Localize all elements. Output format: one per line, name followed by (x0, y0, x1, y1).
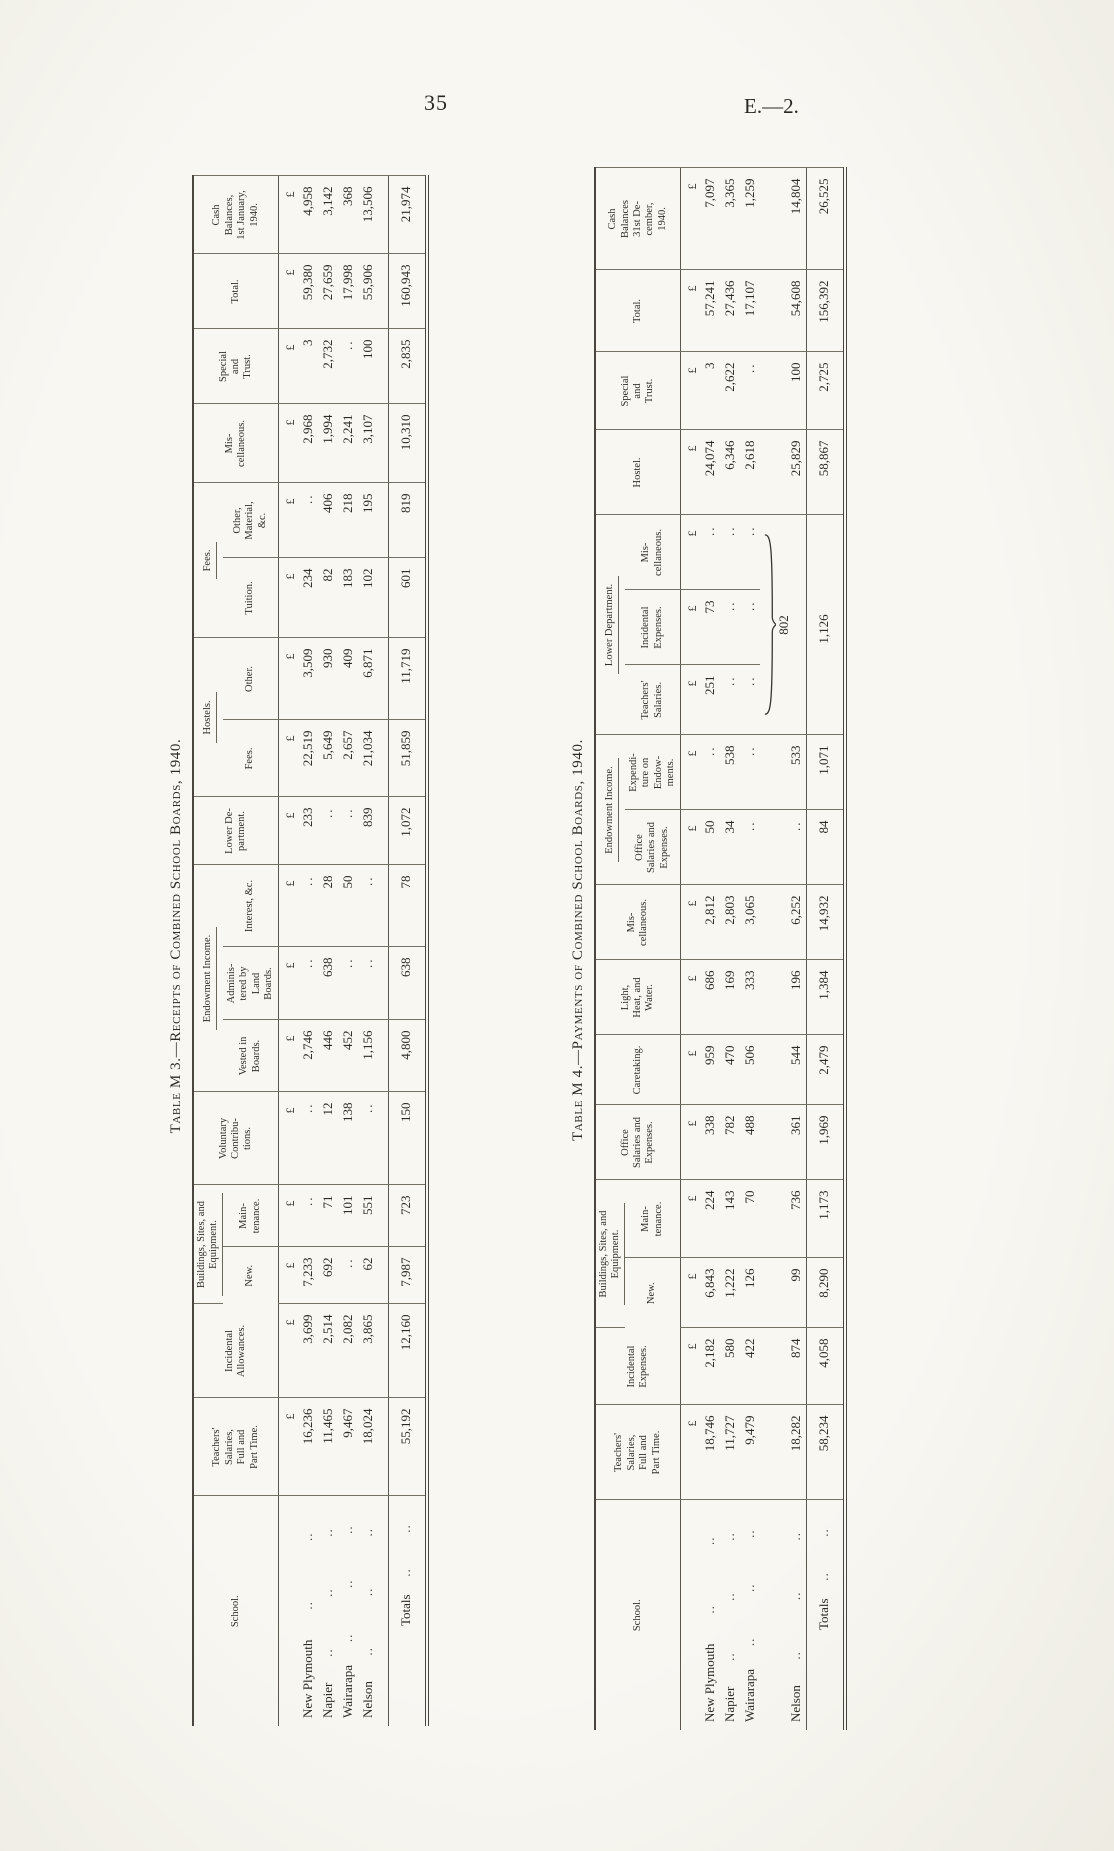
value-cell: 6,843 (700, 1258, 720, 1328)
value-cell: 100 (358, 329, 389, 404)
dot-leader: .. (300, 1601, 316, 1610)
m3-group-fees: Fees. (193, 483, 223, 638)
value-cell: 4,958 (298, 176, 318, 254)
currency-symbol: £ (681, 168, 701, 270)
value-cell: 156,392 (807, 270, 846, 352)
value-cell: .. (358, 865, 389, 947)
table-m3-body: £££££££££££££££££New Plymouth....16,2363… (279, 176, 428, 1726)
school-name-cell: Wairarapa...... (338, 1496, 358, 1726)
totals-label-cell: Totals.... (807, 1500, 846, 1730)
value-cell: 17,107 (740, 270, 760, 352)
value-cell: 101 (338, 1185, 358, 1247)
currency-symbol: £ (279, 1398, 299, 1496)
value-cell: .. (720, 665, 740, 735)
value-cell: 2,514 (318, 1304, 338, 1398)
table-row: Nelson......18,282874997363615441966,252… (760, 168, 807, 1730)
value-cell: .. (740, 590, 760, 665)
table-row: Wairarapa......9,479422126704885063333,0… (740, 168, 760, 1730)
value-cell: 601 (389, 558, 428, 638)
currency-symbol: £ (279, 404, 299, 483)
dot-leader: .. (742, 1583, 758, 1592)
currency-symbol: £ (279, 720, 299, 797)
table-row: Napier......11,7275801,2221437824701692,… (720, 168, 740, 1730)
value-cell: 406 (318, 483, 338, 558)
value-cell: 27,659 (318, 254, 338, 329)
school-name: Napier (722, 1687, 738, 1722)
currency-symbol: £ (279, 558, 299, 638)
value-cell: .. (298, 947, 318, 1020)
totals-row: Totals....58,2344,0588,2901,1731,9692,47… (807, 168, 846, 1730)
school-name-cell: Napier...... (318, 1496, 338, 1726)
value-cell: 18,024 (358, 1398, 389, 1496)
value-cell: 12,160 (389, 1304, 428, 1398)
value-cell: 361 (760, 1105, 807, 1180)
currency-symbol: £ (279, 638, 299, 720)
m3-group-buildings: Buildings, Sites, and Equipment. (193, 1185, 223, 1304)
value-cell: .. (338, 947, 358, 1020)
value-cell: 3 (700, 352, 720, 430)
value-cell: 183 (338, 558, 358, 638)
value-cell: 638 (389, 947, 428, 1020)
table-m4-rotated-container: Table M 4.—Payments of Combined School B… (570, 150, 847, 1730)
value-cell: .. (298, 1185, 318, 1247)
blank-cell (279, 1496, 299, 1726)
value-cell: 7,987 (389, 1247, 428, 1304)
value-cell: 11,719 (389, 638, 428, 720)
m4-group-buildings: Buildings, Sites, and Equipment. (595, 1180, 625, 1328)
m3-col-administered-by-land-boards: Adminis- tered by Land Boards. (223, 947, 279, 1020)
value-cell: 6,871 (358, 638, 389, 720)
value-cell: 11,727 (720, 1405, 740, 1500)
value-cell: 930 (318, 638, 338, 720)
value-cell: .. (358, 1092, 389, 1185)
value-cell: 233 (298, 797, 318, 865)
dot-leader: .. (816, 1572, 832, 1581)
school-name: Nelson (788, 1685, 804, 1722)
value-cell: 11,465 (318, 1398, 338, 1496)
m3-col-hostels-fees: Fees. (223, 720, 279, 797)
value-cell: 2,968 (298, 404, 318, 483)
dot-leader: .. (722, 1532, 738, 1541)
value-cell: 5,649 (318, 720, 338, 797)
currency-symbol: £ (279, 329, 299, 404)
value-cell: 59,380 (298, 254, 318, 329)
value-cell: 1,156 (358, 1020, 389, 1092)
value-cell: 6,346 (720, 430, 740, 515)
value-cell: 28 (318, 865, 338, 947)
value-cell: .. (358, 947, 389, 1020)
dot-leader: .. (788, 1651, 804, 1660)
m4-group-endowment-income: Endowment Income. (595, 735, 625, 885)
currency-symbol: £ (279, 1020, 299, 1092)
value-cell: 959 (700, 1035, 720, 1105)
value-cell: 1,969 (807, 1105, 846, 1180)
currency-symbol: £ (279, 176, 299, 254)
school-name: Napier (320, 1683, 336, 1718)
currency-symbol: £ (681, 1035, 701, 1105)
m3-col-lower-department: Lower De- partment. (193, 797, 279, 865)
value-cell: 34 (720, 810, 740, 885)
value-cell: .. (740, 735, 760, 810)
dot-leader: .. (816, 1528, 832, 1537)
dot-leader: .. (340, 1634, 356, 1643)
value-cell: 3,865 (358, 1304, 389, 1398)
m4-col-office-salaries: Office Salaries and Expenses. (595, 1105, 681, 1180)
value-cell: 9,479 (740, 1405, 760, 1500)
value-cell: 99 (760, 1258, 807, 1328)
value-cell: 8,290 (807, 1258, 846, 1328)
value-cell: 3,065 (740, 885, 760, 960)
document-reference: E.—2. (744, 94, 799, 119)
value-cell: 55,906 (358, 254, 389, 329)
m4-col-light-heat-water: Light, Heat, and Water. (595, 960, 681, 1035)
value-cell: 506 (740, 1035, 760, 1105)
value-cell: 22,519 (298, 720, 318, 797)
table-m3-header: School. Teachers' Salaries, Full and Par… (193, 176, 279, 1726)
totals-row: Totals....55,19212,1607,9877231504,80063… (389, 176, 428, 1726)
m3-group-endowment-income: Endowment Income. (193, 865, 223, 1092)
value-cell: 24,074 (700, 430, 720, 515)
value-cell: .. (298, 1092, 318, 1185)
value-cell: 2,182 (700, 1328, 720, 1405)
value-cell: 446 (318, 1020, 338, 1092)
value-cell: .. (720, 590, 740, 665)
table-m4-body: £££££££££££££££££New Plymouth....18,7462… (681, 168, 846, 1730)
school-name: New Plymouth (300, 1640, 316, 1718)
currency-symbol: £ (681, 735, 701, 810)
value-cell: 2,657 (338, 720, 358, 797)
currency-symbol: £ (681, 960, 701, 1035)
m4-col-caretaking: Caretaking. (595, 1035, 681, 1105)
value-cell: 27,436 (720, 270, 740, 352)
school-name-cell: Nelson...... (358, 1496, 389, 1726)
value-cell: 143 (720, 1180, 740, 1258)
m4-group-lower-department: Lower Department. (595, 515, 625, 735)
table-m3-rotated-container: Table M 3.—Receipts of Combined School B… (168, 146, 429, 1726)
m3-col-school: School. (193, 1496, 279, 1726)
value-cell: 3,509 (298, 638, 318, 720)
dot-leader: .. (398, 1568, 414, 1577)
value-cell: 544 (760, 1035, 807, 1105)
value-cell: 14,804 (760, 168, 807, 270)
m3-col-maintenance: Main- tenance. (223, 1185, 279, 1247)
currency-symbol: £ (681, 1328, 701, 1405)
value-cell: 470 (720, 1035, 740, 1105)
value-cell: 251 (700, 665, 720, 735)
value-cell: 736 (760, 1180, 807, 1258)
value-cell: 50 (700, 810, 720, 885)
table-m3-caption: Table M 3.—Receipts of Combined School B… (168, 146, 185, 1726)
table-row: New Plymouth....16,2363,6997,233....2,74… (298, 176, 318, 1726)
value-cell: 6,252 (760, 885, 807, 960)
value-cell: 3,699 (298, 1304, 318, 1398)
value-cell: 2,618 (740, 430, 760, 515)
m3-col-tuition: Tuition. (223, 558, 279, 638)
value-cell: .. (760, 810, 807, 885)
value-cell: 7,233 (298, 1247, 318, 1304)
value-cell: .. (338, 329, 358, 404)
m4-col-teachers-salaries: Teachers' Salaries, Full and Part Time. (595, 1405, 681, 1500)
currency-symbol: £ (681, 665, 701, 735)
m4-col-hostel: Hostel. (595, 430, 681, 515)
value-cell: 16,236 (298, 1398, 318, 1496)
currency-symbol: £ (681, 590, 701, 665)
currency-symbol: £ (279, 483, 299, 558)
m4-col-ld-teachers-salaries: Teachers' Salaries. (625, 665, 681, 735)
table-m4-caption: Table M 4.—Payments of Combined School B… (570, 150, 587, 1730)
school-name-cell: New Plymouth.... (700, 1500, 720, 1730)
school-name-cell: Nelson...... (760, 1500, 807, 1730)
m3-col-special-and-trust: Special and Trust. (193, 329, 279, 404)
currency-symbol: £ (681, 1258, 701, 1328)
value-cell: 10,310 (389, 404, 428, 483)
merged-value: 802 (776, 615, 792, 635)
table-m4-payments: School. Teachers' Salaries, Full and Par… (594, 167, 847, 1730)
value-cell: .. (700, 735, 720, 810)
dot-leader: .. (788, 1592, 804, 1601)
value-cell: .. (740, 515, 760, 590)
value-cell: 18,282 (760, 1405, 807, 1500)
value-cell: 126 (740, 1258, 760, 1328)
value-cell: 839 (358, 797, 389, 865)
dot-leader: .. (742, 1529, 758, 1538)
totals-label-cell: Totals.... (389, 1496, 428, 1726)
value-cell: 819 (389, 483, 428, 558)
value-cell: 368 (338, 176, 358, 254)
value-cell: 82 (318, 558, 338, 638)
dot-leader: .. (722, 1652, 738, 1661)
value-cell: 224 (700, 1180, 720, 1258)
school-name-cell: Napier...... (720, 1500, 740, 1730)
value-cell: 169 (720, 960, 740, 1035)
dot-leader: .. (320, 1528, 336, 1537)
value-cell: 160,943 (389, 254, 428, 329)
dot-leader: .. (300, 1533, 316, 1542)
m4-col-miscellaneous: Mis- cellaneous. (595, 885, 681, 960)
m4-col-ld-miscellaneous: Mis- cellaneous. (625, 515, 681, 590)
dot-leader: .. (340, 1579, 356, 1588)
m3-col-other-material: Other, Material, &c. (223, 483, 279, 558)
value-cell: 26,525 (807, 168, 846, 270)
dot-leader: .. (340, 1525, 356, 1534)
merged-value-cell: 1,126 (807, 515, 846, 735)
value-cell: 9,467 (338, 1398, 358, 1496)
value-cell: 333 (740, 960, 760, 1035)
value-cell: 2,082 (338, 1304, 358, 1398)
table-m3-receipts: School. Teachers' Salaries, Full and Par… (192, 175, 429, 1726)
m3-col-new: New. (223, 1247, 279, 1304)
value-cell: 54,608 (760, 270, 807, 352)
value-cell: .. (298, 865, 318, 947)
value-cell: 1,384 (807, 960, 846, 1035)
currency-symbol: £ (279, 797, 299, 865)
value-cell: 2,746 (298, 1020, 318, 1092)
value-cell: 7,097 (700, 168, 720, 270)
dot-leader: .. (702, 1605, 718, 1614)
currency-symbol: £ (279, 1247, 299, 1304)
value-cell: 3,107 (358, 404, 389, 483)
m3-col-interest: Interest, &c. (223, 865, 279, 947)
value-cell: 1,259 (740, 168, 760, 270)
value-cell: 2,479 (807, 1035, 846, 1105)
value-cell: .. (720, 515, 740, 590)
value-cell: 1,173 (807, 1180, 846, 1258)
value-cell: 18,746 (700, 1405, 720, 1500)
dot-leader: .. (702, 1537, 718, 1546)
school-name: Nelson (360, 1681, 376, 1718)
table-row: Napier......11,4652,514692711244663828..… (318, 176, 338, 1726)
value-cell: 58,867 (807, 430, 846, 515)
value-cell: .. (740, 810, 760, 885)
value-cell: 138 (338, 1092, 358, 1185)
value-cell: 2,812 (700, 885, 720, 960)
value-cell: 51,859 (389, 720, 428, 797)
value-cell: 21,974 (389, 176, 428, 254)
m3-group-hostels: Hostels. (193, 638, 223, 797)
m3-col-miscellaneous: Mis- cellaneous. (193, 404, 279, 483)
m4-col-school: School. (595, 1500, 681, 1730)
school-name: Totals (398, 1594, 414, 1626)
school-name: New Plymouth (702, 1644, 718, 1722)
value-cell: 580 (720, 1328, 740, 1405)
value-cell: 12 (318, 1092, 338, 1185)
dot-leader: .. (742, 1638, 758, 1647)
m3-col-vested-in-boards: Vested in Boards. (223, 1020, 279, 1092)
value-cell: 2,835 (389, 329, 428, 404)
value-cell: 488 (740, 1105, 760, 1180)
school-name: Wairarapa (340, 1665, 356, 1718)
table-row: New Plymouth....18,7462,1826,84322433895… (700, 168, 720, 1730)
currency-symbol: £ (279, 1304, 299, 1398)
dot-leader: .. (722, 1592, 738, 1601)
value-cell: 71 (318, 1185, 338, 1247)
m4-col-new: New. (625, 1258, 681, 1328)
dot-leader: .. (360, 1528, 376, 1537)
value-cell: 1,222 (720, 1258, 740, 1328)
currency-symbol: £ (681, 885, 701, 960)
value-cell: 2,241 (338, 404, 358, 483)
value-cell: .. (338, 797, 358, 865)
m3-col-hostels-other: Other. (223, 638, 279, 720)
school-name-cell: Wairarapa...... (740, 1500, 760, 1730)
page-number: 35 (424, 90, 448, 116)
dot-leader: .. (360, 1647, 376, 1656)
value-cell: 551 (358, 1185, 389, 1247)
value-cell: 62 (358, 1247, 389, 1304)
value-cell: 50 (338, 865, 358, 947)
value-cell: 84 (807, 810, 846, 885)
scanned-document-page: 35 E.—2. Table M 3.—Receipts of Combined… (0, 0, 1114, 1851)
value-cell: 70 (740, 1180, 760, 1258)
currency-symbol: £ (681, 515, 701, 590)
value-cell: 422 (740, 1328, 760, 1405)
value-cell: .. (740, 352, 760, 430)
curly-brace-icon (763, 533, 776, 718)
m3-col-cash-balances: Cash Balances, 1st January, 1940. (193, 176, 279, 254)
m4-col-total: Total. (595, 270, 681, 352)
value-cell: 638 (318, 947, 338, 1020)
value-cell: 533 (760, 735, 807, 810)
value-cell: 2,622 (720, 352, 740, 430)
value-cell: 686 (700, 960, 720, 1035)
m4-col-incidental-expenses: Incidental Expenses. (595, 1328, 681, 1405)
value-cell: 409 (338, 638, 358, 720)
dot-leader: .. (788, 1532, 804, 1541)
m4-col-cash-balances: Cash Balances 31st De- cember, 1940. (595, 168, 681, 270)
value-cell: .. (740, 665, 760, 735)
currency-symbol: £ (681, 810, 701, 885)
value-cell: 100 (760, 352, 807, 430)
value-cell: 874 (760, 1328, 807, 1405)
currency-row: £££££££££££££££££ (681, 168, 701, 1730)
table-row: Wairarapa......9,4672,082..101138452..50… (338, 176, 358, 1726)
school-name-cell: New Plymouth.... (298, 1496, 318, 1726)
value-cell: 150 (389, 1092, 428, 1185)
value-cell: 782 (720, 1105, 740, 1180)
value-cell: 218 (338, 483, 358, 558)
value-cell: 692 (318, 1247, 338, 1304)
currency-symbol: £ (681, 430, 701, 515)
value-cell: .. (338, 1247, 358, 1304)
school-name: Wairarapa (742, 1669, 758, 1722)
value-cell: 2,725 (807, 352, 846, 430)
currency-row: £££££££££££££££££ (279, 176, 299, 1726)
value-cell: .. (700, 515, 720, 590)
value-cell: 13,506 (358, 176, 389, 254)
m4-col-expenditure-on-endowments: Expendi- ture on Endow- ments. (625, 735, 681, 810)
value-cell: 55,192 (389, 1398, 428, 1496)
currency-symbol: £ (279, 1185, 299, 1247)
value-cell: 4,058 (807, 1328, 846, 1405)
currency-symbol: £ (279, 865, 299, 947)
merged-value-cell: 802 (760, 515, 807, 735)
value-cell: 195 (358, 483, 389, 558)
dot-leader: .. (320, 1648, 336, 1657)
value-cell: 57,241 (700, 270, 720, 352)
currency-symbol: £ (681, 1405, 701, 1500)
school-name: Totals (816, 1598, 832, 1630)
value-cell: 73 (700, 590, 720, 665)
currency-symbol: £ (279, 947, 299, 1020)
value-cell: 14,932 (807, 885, 846, 960)
value-cell: 3,365 (720, 168, 740, 270)
blank-cell (681, 1500, 701, 1730)
value-cell: 538 (720, 735, 740, 810)
value-cell: 21,034 (358, 720, 389, 797)
m3-col-incidental-allowances: Incidental Allowances. (193, 1304, 279, 1398)
currency-symbol: £ (681, 1105, 701, 1180)
value-cell: 2,803 (720, 885, 740, 960)
value-cell: 1,994 (318, 404, 338, 483)
value-cell: 338 (700, 1105, 720, 1180)
value-cell: 196 (760, 960, 807, 1035)
dot-leader: .. (320, 1588, 336, 1597)
value-cell: 452 (338, 1020, 358, 1092)
value-cell: 58,234 (807, 1405, 846, 1500)
value-cell: 1,072 (389, 797, 428, 865)
m4-col-special-and-trust: Special and Trust. (595, 352, 681, 430)
value-cell: .. (298, 483, 318, 558)
m4-col-ld-incidental-expenses: Incidental Expenses. (625, 590, 681, 665)
dot-leader: .. (360, 1588, 376, 1597)
value-cell: 4,800 (389, 1020, 428, 1092)
value-cell: 78 (389, 865, 428, 947)
m4-col-endowment-office-salaries: Office Salaries and Expenses. (625, 810, 681, 885)
dot-leader: .. (398, 1524, 414, 1533)
currency-symbol: £ (681, 352, 701, 430)
currency-symbol: £ (681, 1180, 701, 1258)
value-cell: 234 (298, 558, 318, 638)
